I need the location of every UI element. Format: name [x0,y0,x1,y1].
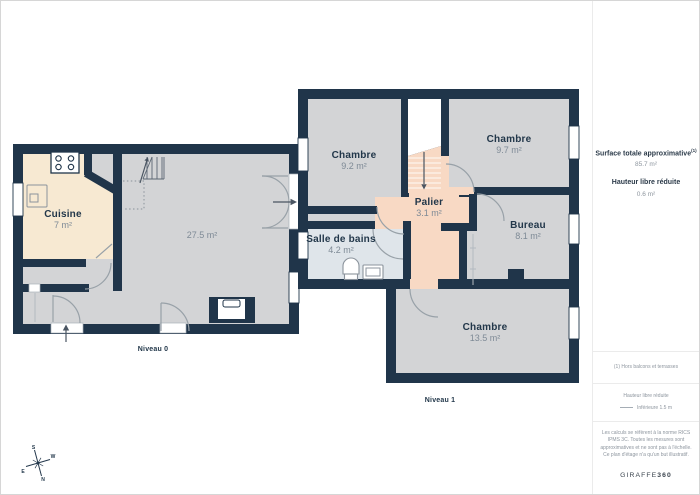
floorplan-page: Cuisine 7 m² 27.5 m² Niveau 0 [0,0,700,495]
section-divider [593,383,699,384]
plan-level0: Cuisine 7 m² 27.5 m² Niveau 0 [13,144,299,353]
compass-rose: S W E N [21,445,55,483]
room-label: Chambre [463,322,508,333]
room-area-label: 13.5 m² [470,333,501,343]
footnote-text: (1) Hors balcons et terrasses [593,364,699,370]
room-label: Chambre [487,134,532,145]
room-area-label: 3.1 m² [416,208,442,218]
legend-item-text: Inférieure 1.5 m [637,405,672,411]
compass-e: E [21,469,25,475]
reduced-height-line-icon [620,407,633,408]
compass-s: S [32,445,36,451]
disclaimer-text: Les calculs se réfèrent à la norme RICS … [597,430,695,459]
room-label: Bureau [510,220,546,231]
stairs-down-icon [408,99,441,193]
window [569,214,579,244]
room-label: Cuisine [44,209,82,220]
door-opening [160,323,186,333]
room-label: Salle de bains [306,234,376,245]
logo-prefix: GIRAFFE [620,472,657,479]
reduced-height-label: Hauteur libre réduite [593,179,699,186]
legend-title: Hauteur libre réduite [593,393,699,399]
surface-total-text: Surface totale approximative [595,150,691,157]
fireplace-icon [209,297,255,323]
section-divider [593,421,699,422]
legend-row: Inférieure 1.5 m [593,405,699,411]
window [289,272,299,303]
room-label: Palier [415,197,443,208]
logo-suffix: 360 [657,472,672,479]
room-area-label: 7 m² [54,220,72,230]
toilet-icon [343,258,359,280]
window [569,307,579,339]
section-divider [593,351,699,352]
window [569,126,579,159]
level1-label: Niveau 1 [425,397,455,404]
level0-label: Niveau 0 [138,346,168,353]
reduced-height-value: 0.6 m² [593,191,699,198]
stove-icon [51,152,79,173]
surface-total-value: 85.7 m² [593,161,699,168]
room-area-label: 8.1 m² [515,231,541,241]
window [13,183,23,216]
surface-footnote-marker: (1) [691,148,697,153]
room-area-label: 9.2 m² [341,161,367,171]
plan-level1: Chambre 9.2 m² Chambre 9.7 m² Palier 3.1… [298,89,579,404]
room-area-label: 9.7 m² [496,145,522,155]
giraffe360-logo: GIRAFFE360 [593,472,699,479]
room-area-label: 4.2 m² [328,245,354,255]
room-label: Chambre [332,150,377,161]
interior-opening [29,284,40,292]
bathroom-sink-icon [363,265,383,279]
surface-total-label: Surface totale approximative(1) [593,148,699,157]
compass-w: W [51,454,56,460]
compass-n: N [41,477,45,483]
room-area-label: 27.5 m² [187,230,218,240]
window [298,138,308,171]
